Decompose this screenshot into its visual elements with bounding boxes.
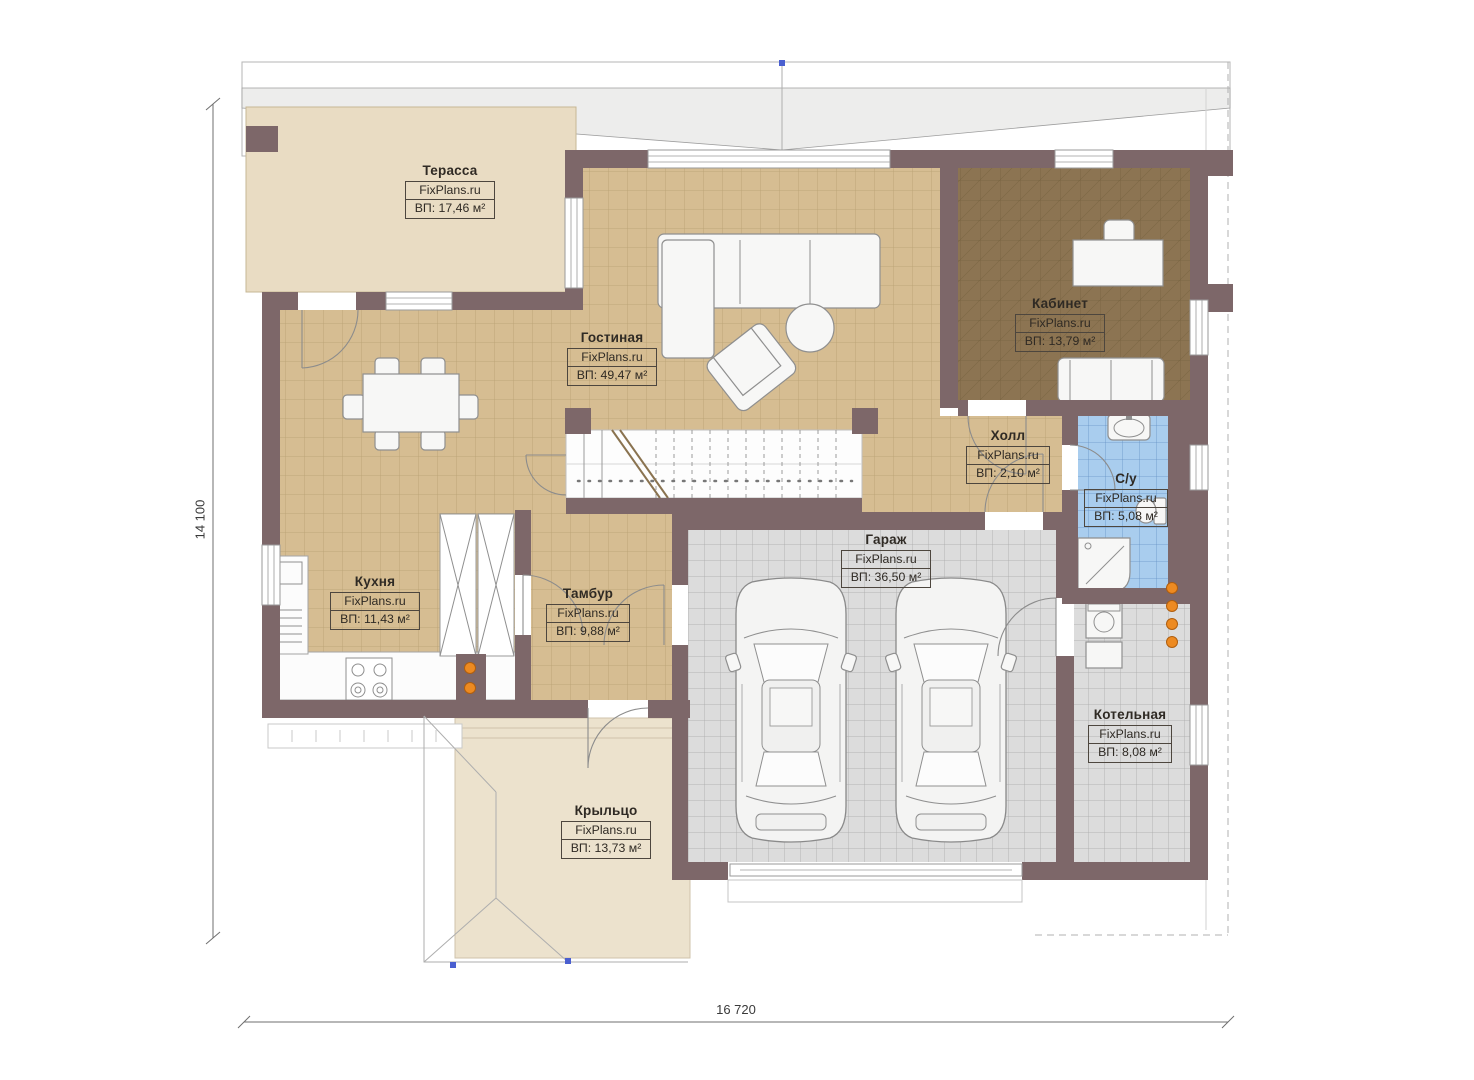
window [386,292,452,310]
area-text: ВП: 13,79 м² [1016,333,1105,350]
brand-text: FixPlans.ru [842,551,931,569]
room-info-box: FixPlans.ru ВП: 5,08 м² [1084,489,1168,527]
room-label-bathroom: С/у FixPlans.ru ВП: 5,08 м² [1062,471,1190,527]
window [1190,300,1208,355]
brand-text: FixPlans.ru [1085,490,1167,508]
room-label-living: Гостиная FixPlans.ru ВП: 49,47 м² [548,330,676,386]
window [262,545,280,605]
room-info-box: FixPlans.ru ВП: 8,08 м² [1088,725,1172,763]
coffee-table [786,304,834,352]
room-label-vestibule: Тамбур FixPlans.ru ВП: 9,88 м² [524,586,652,642]
brand-text: FixPlans.ru [568,349,657,367]
area-text: ВП: 9,88 м² [547,623,629,640]
room-info-box: FixPlans.ru ВП: 13,73 м² [561,821,652,859]
room-info-box: FixPlans.ru ВП: 13,79 м² [1015,314,1106,352]
area-text: ВП: 11,43 м² [331,611,419,628]
window [565,198,583,288]
washing-machine [1086,602,1122,638]
brand-text: FixPlans.ru [1016,315,1105,333]
window [1190,445,1208,490]
room-info-box: FixPlans.ru ВП: 49,47 м² [567,348,658,386]
room-name: Гараж [822,532,950,547]
floor-plan-drawing [0,0,1474,1080]
room-name: Котельная [1066,707,1194,722]
room-label-kitchen: Кухня FixPlans.ru ВП: 11,43 м² [311,574,439,630]
area-text: ВП: 36,50 м² [842,569,931,586]
brand-text: FixPlans.ru [547,605,629,623]
office-sofa [1058,358,1164,402]
room-label-office: Кабинет FixPlans.ru ВП: 13,79 м² [996,296,1124,352]
window [648,150,890,168]
bathroom-sink [1108,412,1150,440]
area-text: ВП: 17,46 м² [406,200,495,217]
room-info-box: FixPlans.ru ВП: 11,43 м² [330,592,420,630]
brand-text: FixPlans.ru [967,447,1049,465]
area-text: ВП: 49,47 м² [568,367,657,384]
room-label-boiler: Котельная FixPlans.ru ВП: 8,08 м² [1066,707,1194,763]
staircase [566,430,862,498]
room-info-box: FixPlans.ru ВП: 17,46 м² [405,181,496,219]
room-name: Тамбур [524,586,652,601]
area-text: ВП: 13,73 м² [562,840,651,857]
car-2 [885,578,1017,842]
room-name: Терасса [386,163,514,178]
area-text: ВП: 2,10 м² [967,465,1049,482]
room-name: С/у [1062,471,1190,486]
area-text: ВП: 8,08 м² [1089,744,1171,761]
window [1055,150,1113,168]
room-label-terrace: Терасса FixPlans.ru ВП: 17,46 м² [386,163,514,219]
brand-text: FixPlans.ru [562,822,651,840]
area-text: ВП: 5,08 м² [1085,508,1167,525]
dimension-height: 14 100 [193,488,208,552]
room-name: Гостиная [548,330,676,345]
room-info-box: FixPlans.ru ВП: 36,50 м² [841,550,932,588]
room-info-box: FixPlans.ru ВП: 2,10 м² [966,446,1050,484]
room-label-porch: Крыльцо FixPlans.ru ВП: 13,73 м² [542,803,670,859]
kitchen-counter [266,652,530,700]
shower [1078,538,1130,592]
floor-plan: Терасса FixPlans.ru ВП: 17,46 м² Гостина… [0,0,1474,1080]
room-name: Кухня [311,574,439,589]
room-label-hall: Холл FixPlans.ru ВП: 2,10 м² [944,428,1072,484]
dimension-width: 16 720 [700,1002,772,1017]
room-info-box: FixPlans.ru ВП: 9,88 м² [546,604,630,642]
boiler-unit [1086,642,1122,668]
room-name: Крыльцо [542,803,670,818]
brand-text: FixPlans.ru [331,593,419,611]
room-label-garage: Гараж FixPlans.ru ВП: 36,50 м² [822,532,950,588]
room-name: Холл [944,428,1072,443]
car-1 [725,578,857,842]
garage-door [728,864,1022,902]
brand-text: FixPlans.ru [1089,726,1171,744]
room-name: Кабинет [996,296,1124,311]
brand-text: FixPlans.ru [406,182,495,200]
walkway [268,724,462,748]
